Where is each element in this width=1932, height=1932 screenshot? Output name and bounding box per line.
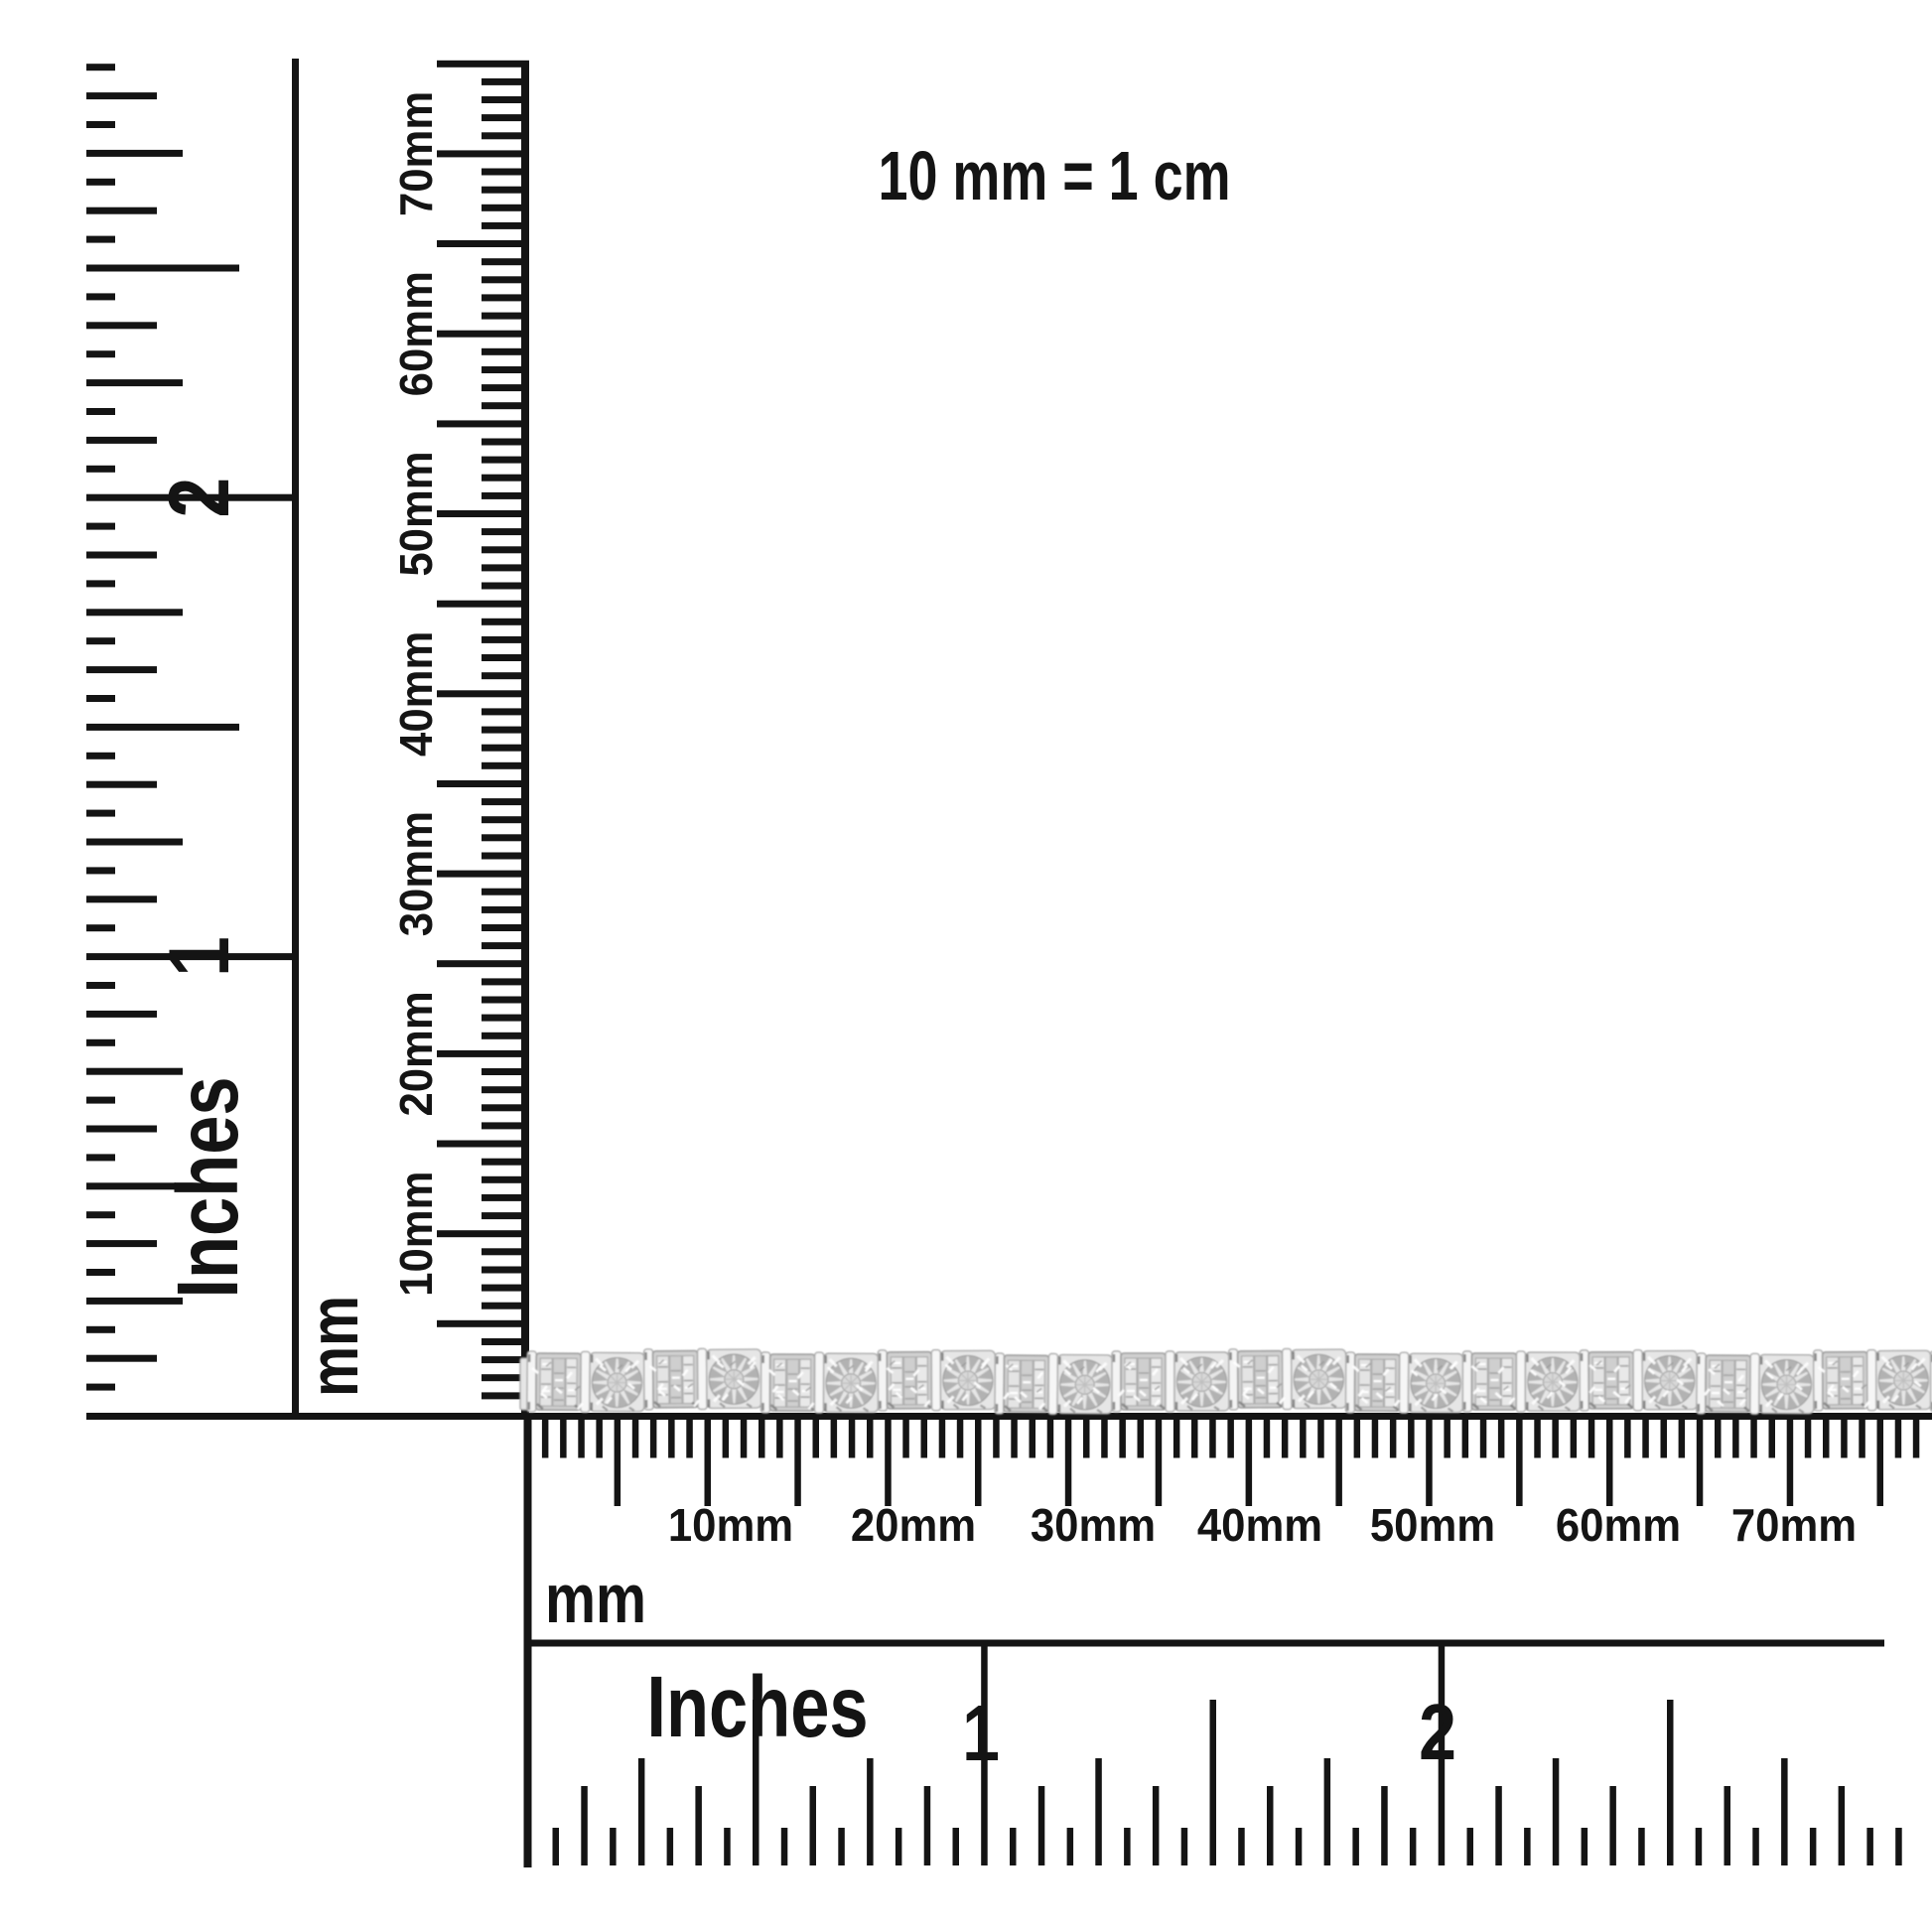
- svg-text:10mm: 10mm: [390, 1172, 442, 1297]
- svg-text:mm: mm: [295, 1296, 373, 1397]
- svg-text:30mm: 30mm: [390, 811, 442, 936]
- svg-text:40mm: 40mm: [1197, 1499, 1322, 1551]
- svg-text:50mm: 50mm: [1370, 1499, 1495, 1551]
- svg-text:20mm: 20mm: [390, 991, 442, 1116]
- svg-text:20mm: 20mm: [851, 1499, 976, 1551]
- svg-text:10mm: 10mm: [668, 1499, 793, 1551]
- svg-text:60mm: 60mm: [1556, 1499, 1681, 1551]
- svg-text:2: 2: [151, 478, 246, 518]
- svg-text:70mm: 70mm: [1731, 1499, 1857, 1551]
- svg-text:10 mm = 1 cm: 10 mm = 1 cm: [878, 137, 1230, 214]
- svg-text:70mm: 70mm: [390, 91, 442, 216]
- svg-text:60mm: 60mm: [390, 271, 442, 396]
- svg-text:40mm: 40mm: [390, 631, 442, 757]
- svg-text:2: 2: [1419, 1688, 1456, 1776]
- svg-text:Inches: Inches: [159, 1076, 256, 1298]
- svg-text:1: 1: [151, 936, 246, 977]
- svg-text:Inches: Inches: [646, 1658, 868, 1755]
- svg-text:50mm: 50mm: [390, 451, 442, 576]
- svg-text:30mm: 30mm: [1031, 1499, 1156, 1551]
- svg-text:mm: mm: [545, 1560, 646, 1638]
- svg-text:1: 1: [962, 1689, 1000, 1777]
